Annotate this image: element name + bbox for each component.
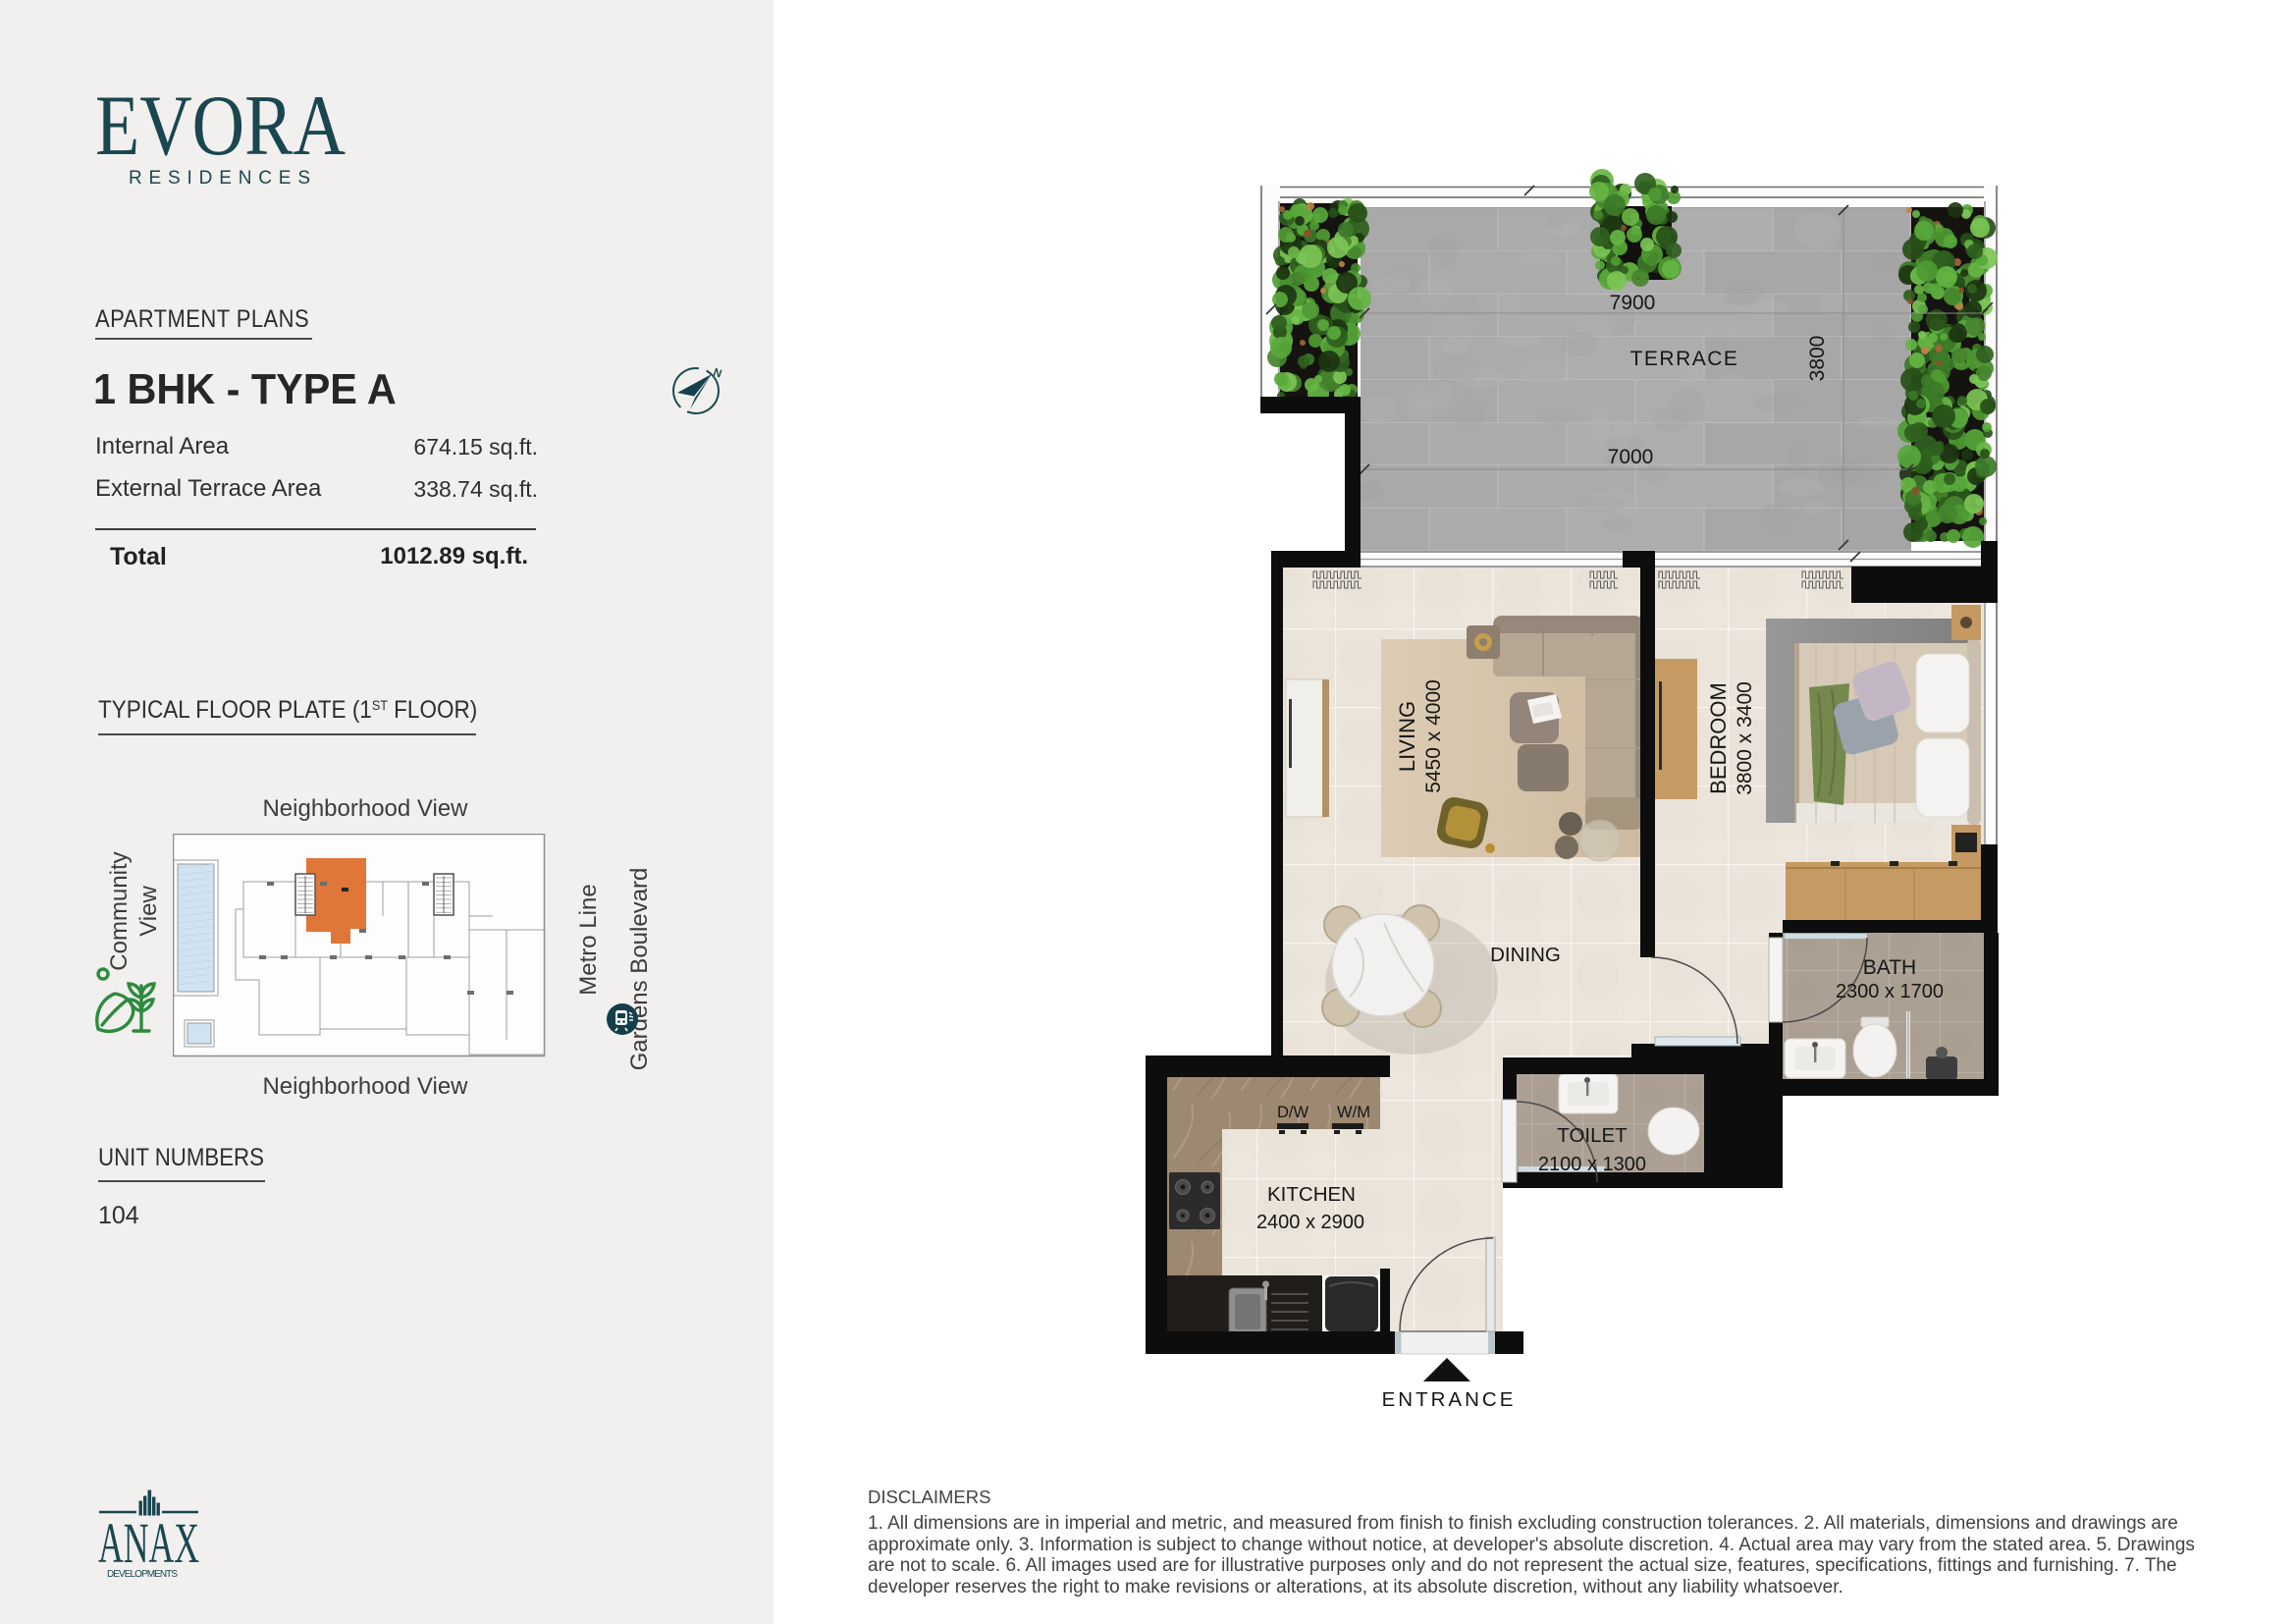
svg-text:DINING: DINING (1490, 944, 1561, 966)
svg-text:7000: 7000 (1608, 446, 1654, 468)
svg-text:EVORA: EVORA (95, 80, 346, 174)
svg-text:3800 x 3400: 3800 x 3400 (1734, 681, 1756, 795)
svg-text:ANAX: ANAX (98, 1511, 199, 1575)
svg-text:7900: 7900 (1610, 292, 1656, 314)
svg-text:D/W: D/W (1277, 1104, 1309, 1121)
svg-text:2400 x 2900: 2400 x 2900 (1256, 1212, 1364, 1233)
svg-text:2300 x 1700: 2300 x 1700 (1836, 981, 1944, 1002)
svg-text:KITCHEN: KITCHEN (1267, 1183, 1356, 1206)
svg-text:5450 x 4000: 5450 x 4000 (1422, 679, 1445, 793)
svg-text:LIVING: LIVING (1395, 701, 1419, 772)
svg-text:TOILET: TOILET (1557, 1124, 1628, 1147)
svg-text:ENTRANCE: ENTRANCE (1382, 1388, 1517, 1411)
svg-text:W/M: W/M (1337, 1104, 1370, 1121)
svg-text:BATH: BATH (1863, 956, 1916, 979)
svg-text:2100 x 1300: 2100 x 1300 (1538, 1154, 1646, 1175)
svg-text:TERRACE: TERRACE (1630, 348, 1739, 370)
svg-text:BEDROOM: BEDROOM (1706, 682, 1731, 794)
svg-text:3800: 3800 (1806, 336, 1829, 382)
svg-text:DEVELOPMENTS: DEVELOPMENTS (107, 1569, 182, 1580)
svg-text:N: N (712, 367, 723, 381)
svg-text:RESIDENCES: RESIDENCES (129, 168, 318, 189)
